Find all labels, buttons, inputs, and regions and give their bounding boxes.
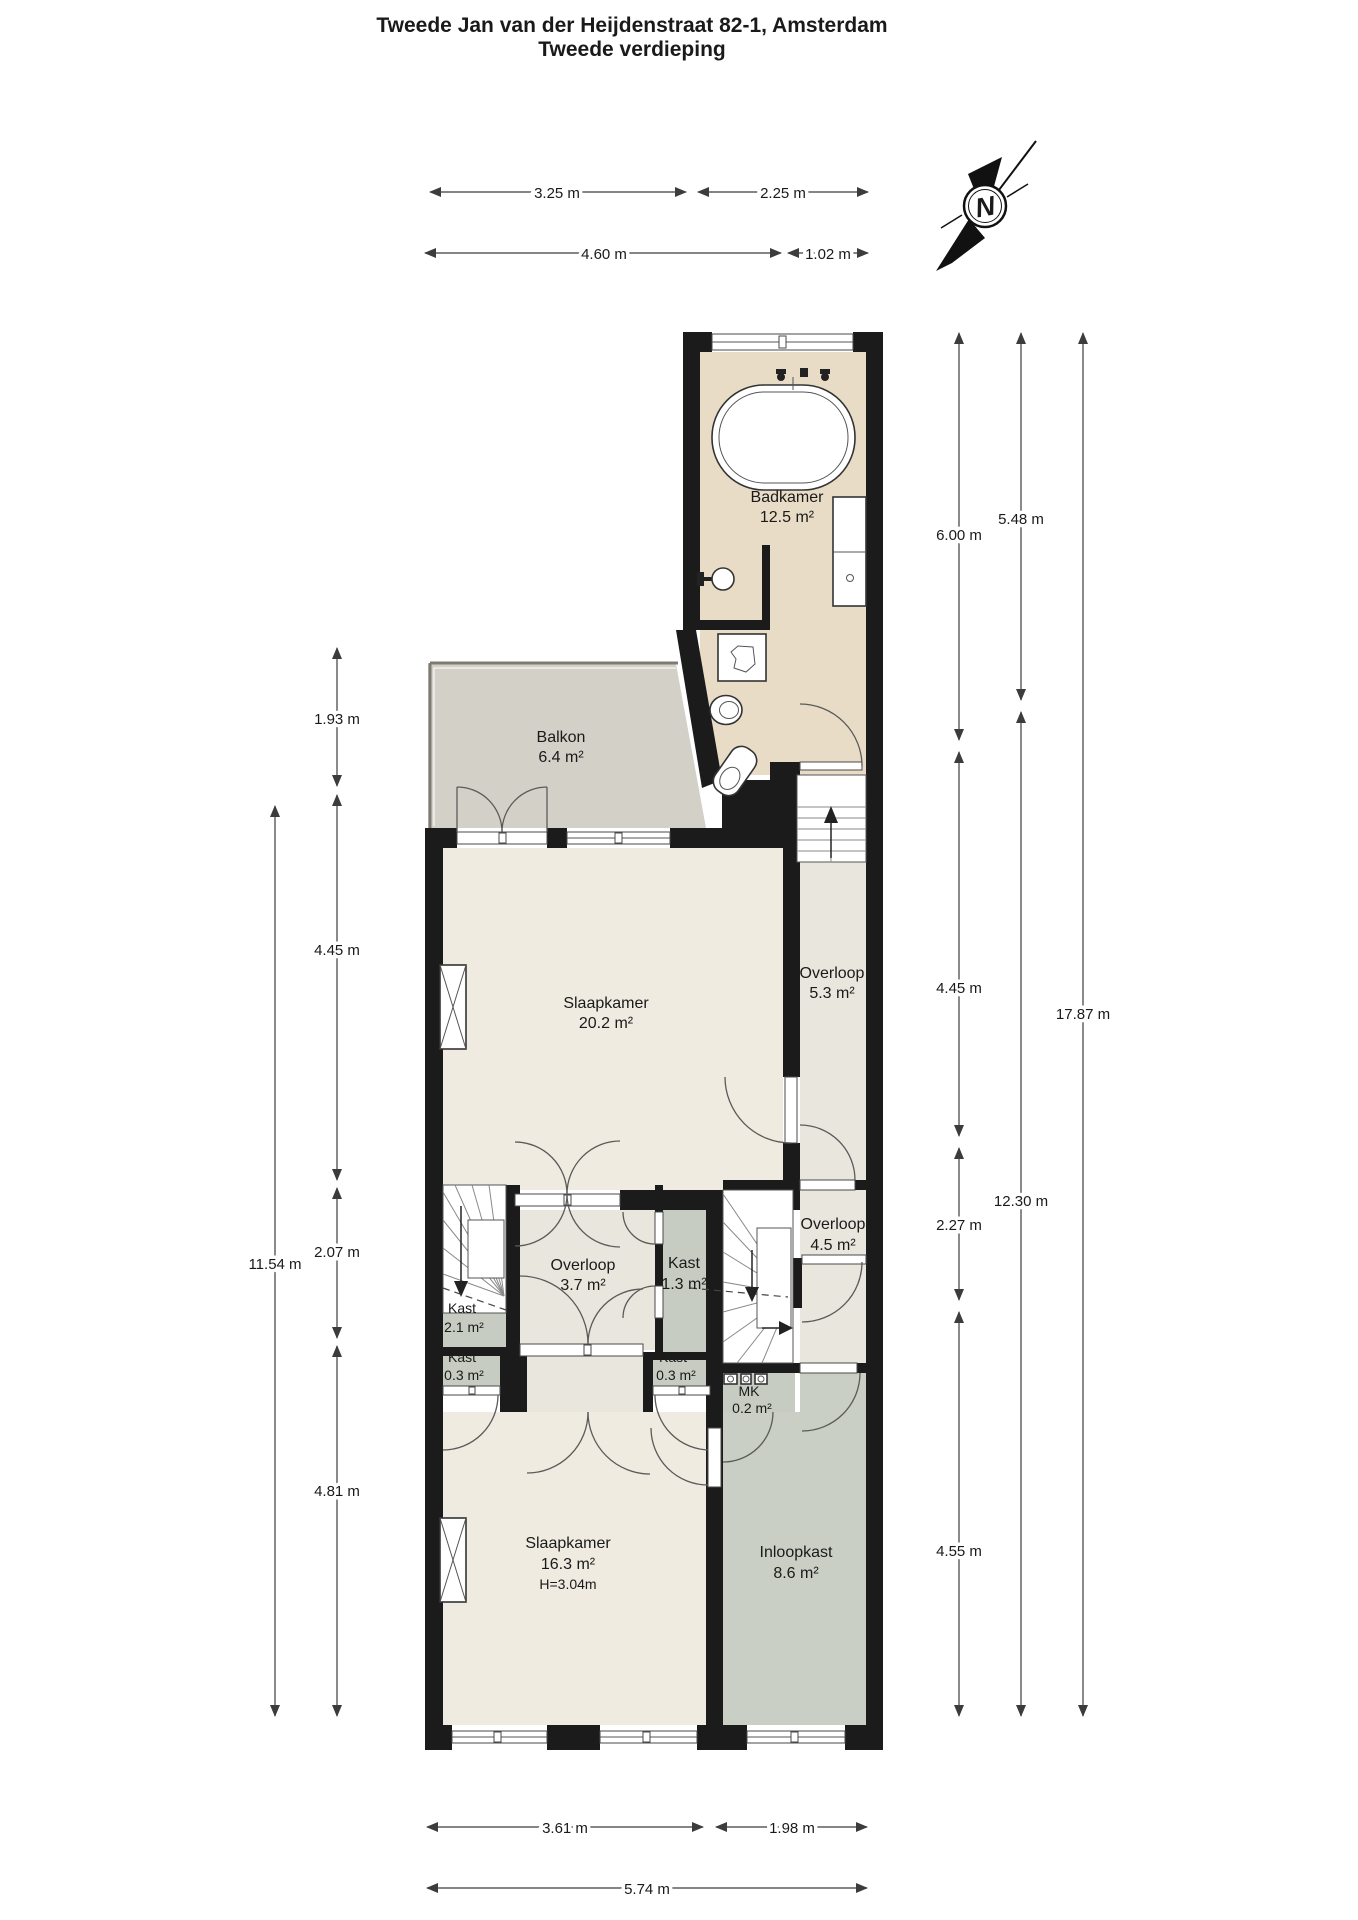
washing-machine — [718, 634, 766, 681]
badkamer-area: 12.5 m² — [760, 509, 815, 526]
slaapkamer-klein-area: 16.3 m² — [541, 1556, 596, 1573]
balkon-floor — [428, 664, 706, 828]
overloop-midden-area: 3.7 m² — [560, 1277, 606, 1294]
kast-03-links-label: Kast — [448, 1349, 476, 1365]
mk-label: MK — [739, 1383, 761, 1399]
slaapkamer-klein-height: H=3.04m — [539, 1576, 596, 1592]
dim-bottom-3: 5.74 m — [624, 1881, 670, 1898]
chimney-groot — [440, 965, 466, 1049]
balkon-label: Balkon — [537, 729, 586, 746]
dim-left-1: 1.93 m — [314, 711, 360, 728]
kast-21-area: 2.1 m² — [444, 1319, 484, 1335]
passage-floor — [527, 1356, 643, 1412]
dim-right-7: 17.87 m — [1056, 1006, 1110, 1023]
floorplan-page: Tweede Jan van der Heijdenstraat 82-1, A… — [0, 0, 1358, 1920]
toilet-small — [710, 696, 742, 725]
kast-03-rechts-label: Kast — [659, 1349, 687, 1365]
dim-top-3: 4.60 m — [581, 246, 627, 263]
dim-left-4: 4.81 m — [314, 1483, 360, 1500]
dim-top-2: 2.25 m — [760, 185, 806, 202]
slaapkamer-groot-area: 20.2 m² — [579, 1015, 634, 1032]
dim-right-3: 2.27 m — [936, 1217, 982, 1234]
chimney-klein — [440, 1518, 466, 1602]
overloop-boven-label: Overloop — [800, 965, 865, 982]
badkamer-label: Badkamer — [751, 489, 825, 506]
slaapkamer-groot-label: Slaapkamer — [563, 995, 649, 1012]
slaapkamer-klein-label: Slaapkamer — [525, 1535, 611, 1552]
page-title: Tweede Jan van der Heijdenstraat 82-1, A… — [376, 14, 887, 37]
compass-north-icon: N — [936, 141, 1036, 271]
dim-top-4: 1.02 m — [805, 246, 851, 263]
dim-bottom-2: 1.98 m — [769, 1820, 815, 1837]
staircase-up — [797, 775, 866, 862]
dim-right-2: 4.45 m — [936, 980, 982, 997]
dim-bottom-1: 3.61 m — [542, 1820, 588, 1837]
dim-right-1: 6.00 m — [936, 527, 982, 544]
balkon-area: 6.4 m² — [538, 749, 584, 766]
overloop-boven-area: 5.3 m² — [809, 985, 855, 1002]
kast-03-links-area: 0.3 m² — [444, 1367, 484, 1383]
kast-03-rechts-area: 0.3 m² — [656, 1367, 696, 1383]
dim-left-3: 2.07 m — [314, 1244, 360, 1261]
inloopkast-area: 8.6 m² — [773, 1565, 819, 1582]
dim-right-5: 5.48 m — [998, 511, 1044, 528]
overloop-45-label: Overloop — [801, 1216, 866, 1233]
kast-21-label: Kast — [448, 1300, 476, 1316]
page-subtitle: Tweede verdieping — [538, 38, 726, 61]
kast-13-area: 1.3 m² — [661, 1276, 707, 1293]
overloop-midden-label: Overloop — [551, 1257, 616, 1274]
vanity-cabinet — [833, 497, 866, 606]
kast-13-label: Kast — [668, 1255, 701, 1272]
dim-left-5: 11.54 m — [248, 1256, 301, 1273]
inloopkast-label: Inloopkast — [760, 1544, 833, 1561]
dim-left-2: 4.45 m — [314, 942, 360, 959]
dim-right-4: 4.55 m — [936, 1543, 982, 1560]
mk-area: 0.2 m² — [732, 1400, 772, 1416]
floorplan-drawing: Tweede Jan van der Heijdenstraat 82-1, A… — [0, 0, 1358, 1920]
overloop-45-area: 4.5 m² — [810, 1237, 856, 1254]
dim-top-1: 3.25 m — [534, 185, 580, 202]
dim-right-6: 12.30 m — [994, 1193, 1048, 1210]
staircase-left-down — [443, 1185, 506, 1313]
